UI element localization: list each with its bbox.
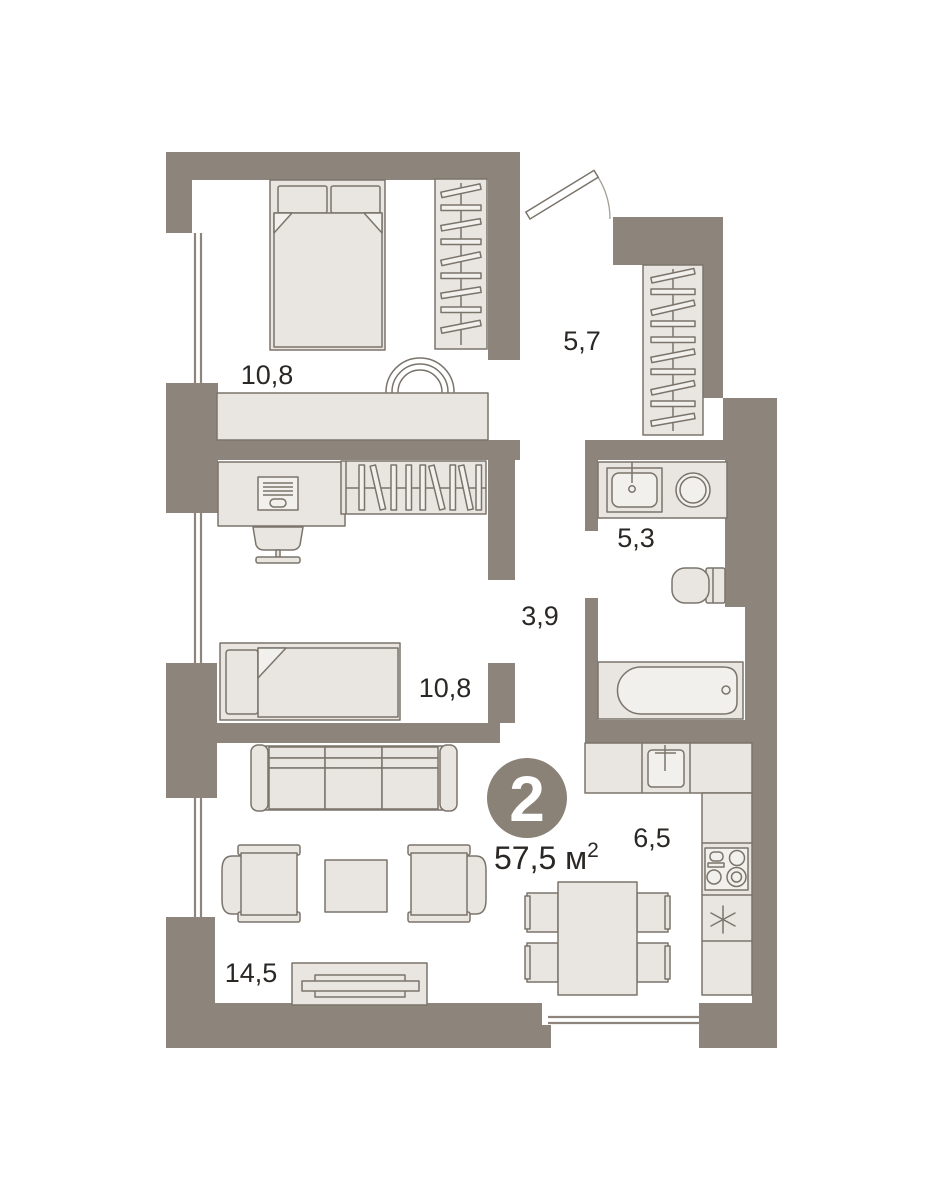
single-bed-icon xyxy=(220,643,400,720)
sink-icon xyxy=(607,462,662,512)
armchair-left-icon xyxy=(222,845,300,922)
entrance-door-icon xyxy=(526,170,610,219)
coffee-table-icon xyxy=(325,860,387,912)
dining-table-icon xyxy=(525,882,670,995)
room-area-bathroom: 5,3 xyxy=(617,523,655,553)
wall-bathroom-left-lower xyxy=(585,598,598,723)
tv-stand-icon xyxy=(292,963,427,1005)
bedroom-1-furniture xyxy=(217,179,488,440)
double-bed-icon xyxy=(270,180,385,350)
room-area-hallway: 5,7 xyxy=(563,326,601,356)
wall-pillar-left-2 xyxy=(166,383,218,513)
wall-pillar-left-3 xyxy=(166,663,217,798)
wall-right-of-door xyxy=(613,217,723,265)
wall-bathroom-bottom xyxy=(585,720,757,743)
badge-total-area: 57,5 м2 xyxy=(494,839,599,876)
wall-bedrooms-divider xyxy=(215,440,520,460)
kitchen-counter-right xyxy=(702,793,752,995)
apartment-badge: 2 57,5 м2 xyxy=(487,758,599,876)
kitchen-sink-icon xyxy=(648,745,684,787)
window-kitchen-bottom xyxy=(548,1017,699,1023)
wall-pillar-top-left xyxy=(166,152,192,233)
floor-plan: 10,8 5,7 5,3 3,9 10,8 6,5 14,5 2 57,5 м2 xyxy=(0,0,929,1200)
wall-bathroom-top xyxy=(585,440,730,460)
window-bedroom1 xyxy=(195,233,201,383)
window-living-room xyxy=(195,798,201,917)
wall-top xyxy=(166,152,520,180)
wall-top-right-corner xyxy=(723,398,777,460)
room-area-bedroom-1: 10,8 xyxy=(241,360,294,390)
wall-right-middle xyxy=(745,607,777,743)
wall-bedroom2-right-lower xyxy=(488,663,515,723)
washing-machine-icon xyxy=(676,473,710,507)
room-area-kitchen: 6,5 xyxy=(633,823,671,853)
room-area-corridor: 3,9 xyxy=(521,601,559,631)
wall-living-top xyxy=(217,723,500,743)
wardrobe-icon xyxy=(435,179,487,349)
badge-rooms-count: 2 xyxy=(509,763,545,835)
wall-bedroom1-right xyxy=(488,152,520,360)
wall-bathroom-left-upper xyxy=(585,460,598,531)
toilet-icon xyxy=(672,568,725,603)
office-chair-icon xyxy=(253,527,303,563)
sofa-icon xyxy=(251,745,457,811)
wall-right-lower xyxy=(752,743,777,1005)
hallway-wardrobe-icon xyxy=(643,265,703,435)
wall-hallway-right xyxy=(703,265,723,398)
bathroom-furniture xyxy=(598,462,743,719)
room-area-living-room: 14,5 xyxy=(225,958,278,988)
wall-bedroom2-right-upper xyxy=(488,460,515,580)
monitor-icon xyxy=(258,477,298,510)
hallway-furniture xyxy=(643,265,703,435)
clothes-rail-icon xyxy=(341,461,486,514)
wall-right-upper xyxy=(725,458,777,607)
bathtub-icon xyxy=(598,662,743,719)
stove-icon xyxy=(705,848,748,890)
wall-bottom xyxy=(166,1003,551,1048)
wall-bottom-right-block xyxy=(699,1003,777,1048)
room-area-bedroom-2: 10,8 xyxy=(419,673,472,703)
armchair-right-icon xyxy=(408,845,486,922)
window-bedroom2 xyxy=(195,513,201,663)
